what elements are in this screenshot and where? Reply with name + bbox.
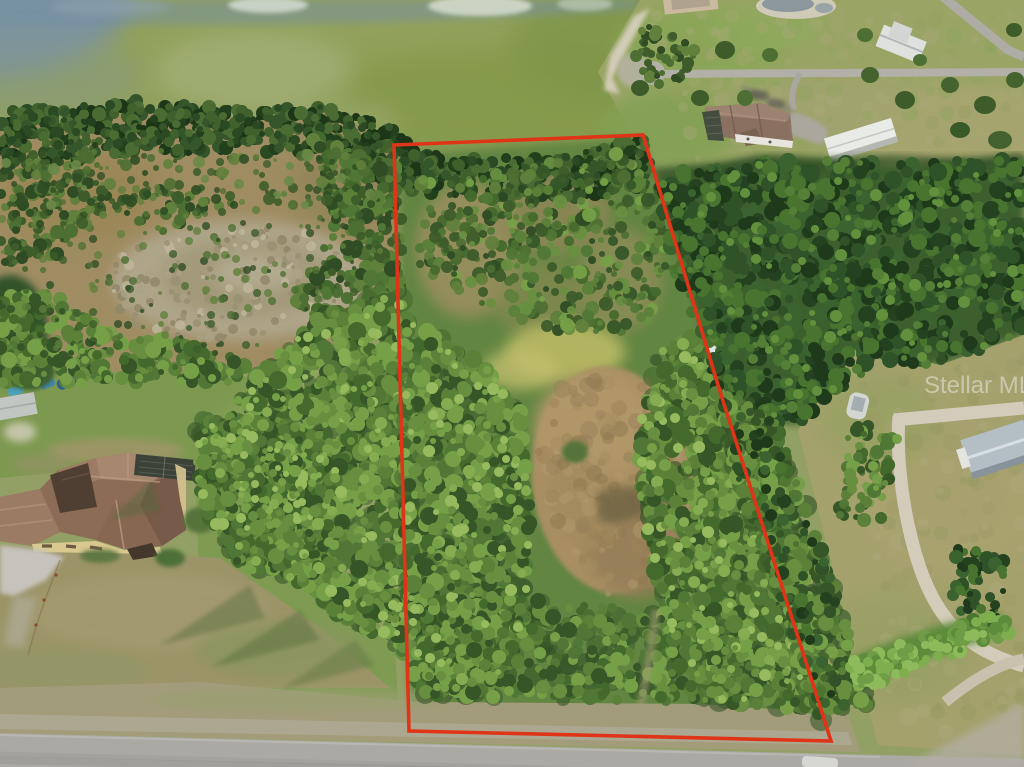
svg-text:Stellar MLS: Stellar MLS (924, 372, 1024, 399)
